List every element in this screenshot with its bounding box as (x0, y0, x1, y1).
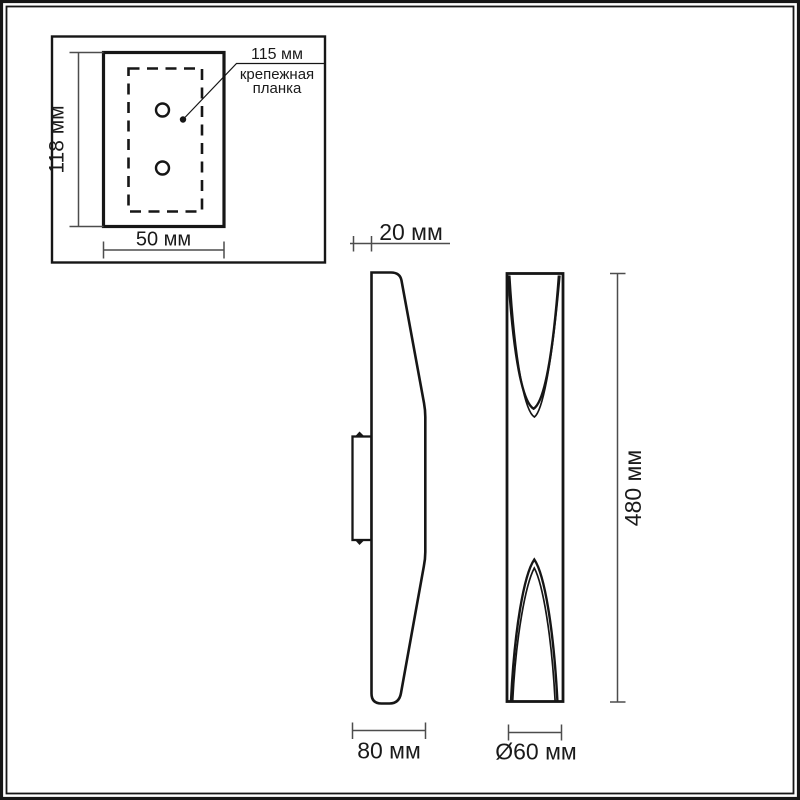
tube-height-label: 480 мм (620, 450, 646, 526)
bracket-screw-top (355, 432, 365, 437)
part-name-line2: планка (253, 80, 302, 97)
mounting-plate-inset: 115 мм крепежная планка 118 мм 50 мм (46, 37, 326, 263)
side-view: 20 мм 80 мм (350, 219, 450, 764)
bracket-depth-label: 20 мм (379, 219, 443, 245)
plate-width-label: 50 мм (136, 229, 191, 251)
wall-bracket (353, 437, 372, 541)
dimension-drawing: 115 мм крепежная планка 118 мм 50 мм 20 … (0, 0, 800, 800)
lamp-body-profile (372, 273, 426, 704)
front-view: 480 мм Ø60 мм (495, 274, 646, 765)
body-width-label: 80 мм (357, 738, 421, 764)
plate-height-dimension-line (70, 53, 104, 227)
technical-drawing-page: 115 мм крепежная планка 118 мм 50 мм 20 … (0, 0, 800, 800)
bracket-screw-bottom (355, 540, 365, 545)
mounting-plate (104, 53, 225, 227)
plate-height-label: 118 мм (46, 105, 69, 173)
hole-pitch-label: 115 мм (251, 46, 303, 63)
tube-diameter-label: Ø60 мм (495, 739, 577, 765)
